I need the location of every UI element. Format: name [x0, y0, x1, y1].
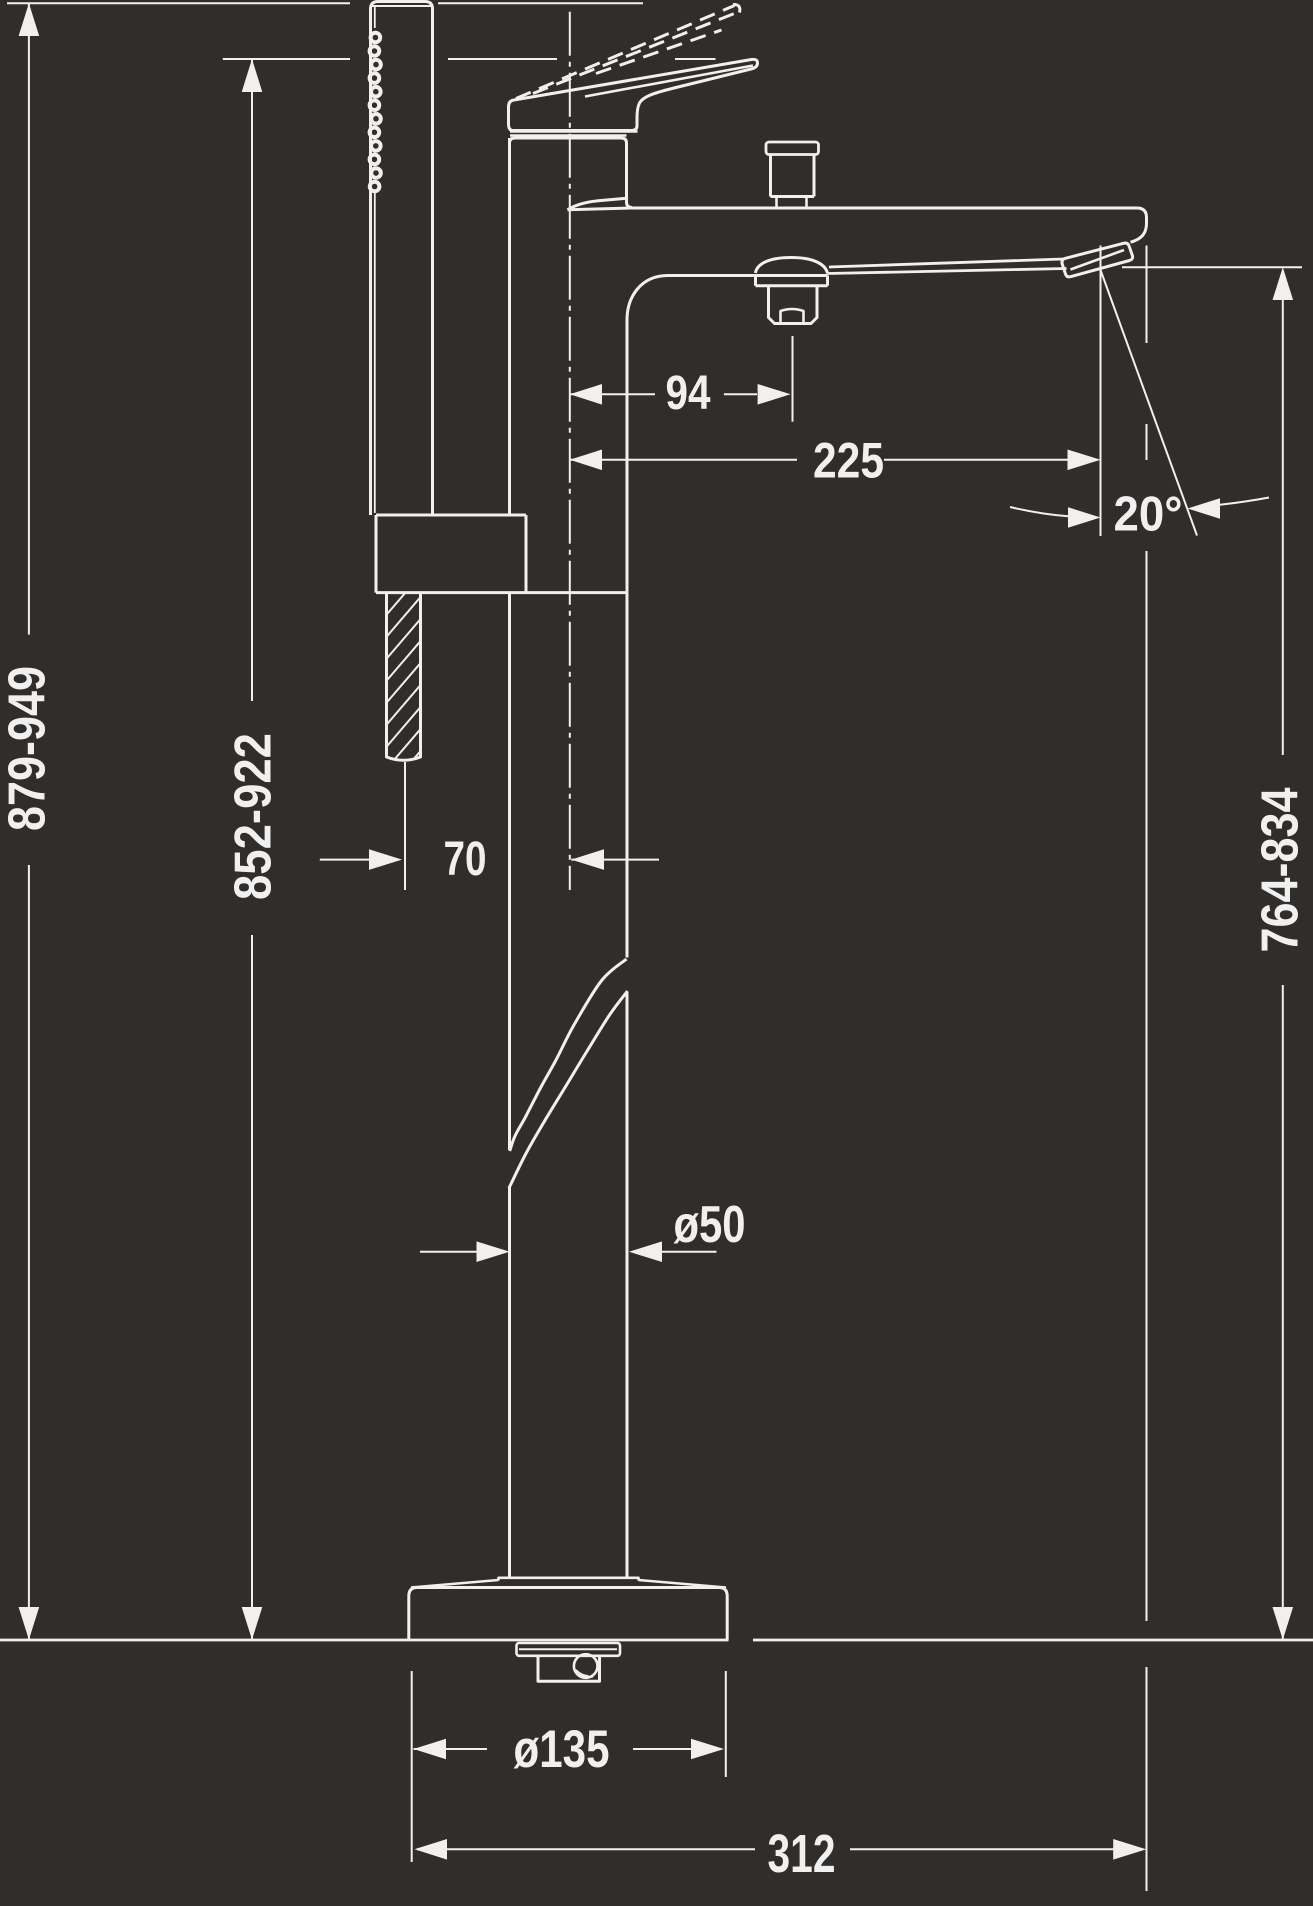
svg-text:852-922: 852-922	[224, 733, 282, 900]
svg-text:225: 225	[813, 433, 884, 489]
svg-text:ø50: ø50	[674, 1196, 746, 1254]
svg-text:764-834: 764-834	[1251, 787, 1309, 952]
svg-text:94: 94	[666, 366, 711, 420]
svg-text:20°: 20°	[1114, 487, 1183, 542]
svg-text:70: 70	[444, 833, 487, 886]
svg-text:ø135: ø135	[514, 1720, 610, 1779]
svg-text:879-949: 879-949	[0, 666, 56, 831]
svg-text:312: 312	[768, 1824, 836, 1884]
